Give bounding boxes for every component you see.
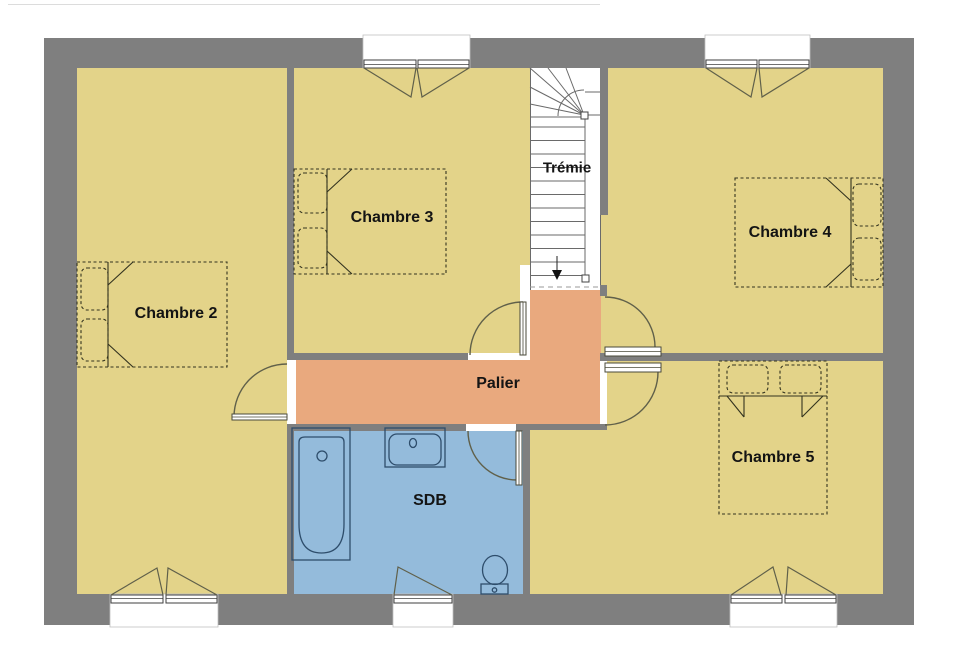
wall	[600, 285, 607, 296]
doorway-sdb	[466, 424, 516, 431]
wall	[287, 353, 468, 360]
room-label-chambre-4: Chambre 4	[749, 224, 832, 242]
room-label-palier: Palier	[476, 375, 520, 393]
room-sdb-floor	[294, 431, 523, 594]
room-label-chambre-5: Chambre 5	[732, 449, 815, 467]
wall	[287, 424, 294, 594]
floor-plan-canvas	[0, 0, 960, 665]
room-label-chambre-3: Chambre 3	[351, 209, 434, 227]
room-chambre-5-floor-left	[530, 430, 607, 594]
floor-plan: Chambre 2 Chambre 3 Chambre 4 Chambre 5 …	[0, 0, 960, 665]
wall	[530, 424, 607, 430]
room-floors	[77, 68, 883, 594]
stairwell-floor	[530, 68, 601, 290]
wall	[600, 68, 608, 215]
wall	[287, 68, 294, 360]
room-label-chambre-2: Chambre 2	[135, 305, 218, 323]
doorway-chambre-3	[468, 353, 520, 360]
room-label-tremie: Trémie	[543, 160, 591, 177]
doorway-chambre-2	[287, 360, 296, 424]
wall	[523, 424, 530, 594]
room-chambre-4-floor	[601, 68, 883, 353]
room-label-sdb: SDB	[413, 492, 447, 510]
